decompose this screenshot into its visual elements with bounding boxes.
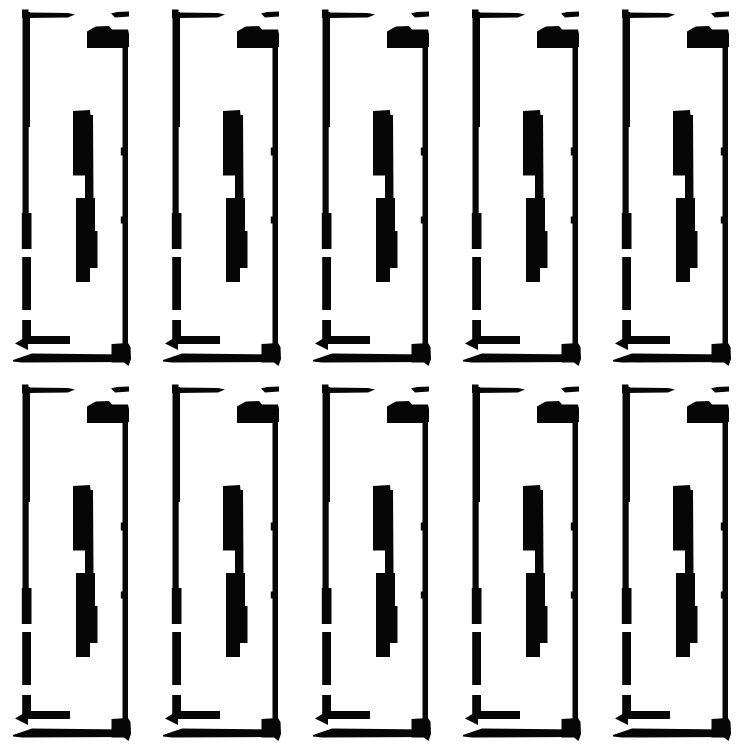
bottom-right-blob — [562, 718, 582, 741]
left-segment-3 — [172, 588, 182, 624]
left-segment-3 — [322, 213, 332, 249]
left-segment-2 — [173, 502, 179, 588]
bottom-right-blob — [412, 343, 432, 366]
middle-lower-bar — [676, 198, 698, 282]
right-nub-lower — [421, 217, 423, 224]
middle-upper-bar — [373, 110, 394, 198]
right-nub-lower — [721, 592, 723, 599]
middle-lower-bar — [526, 198, 548, 282]
right-vertical-line — [723, 420, 729, 721]
left-segment-4 — [22, 632, 31, 685]
top-right-dash — [411, 387, 429, 393]
left-segment-2 — [173, 127, 179, 213]
top-left-line — [328, 388, 375, 394]
bottom-left-line — [476, 711, 520, 719]
left-segment-1 — [323, 387, 331, 502]
top-right-blob — [237, 26, 279, 48]
adhesive-strip-outline-10 — [613, 385, 731, 742]
left-segment-2 — [623, 127, 629, 213]
top-right-dash — [261, 387, 279, 393]
top-right-dash — [711, 12, 729, 18]
left-segment-3 — [22, 588, 32, 624]
middle-upper-bar — [373, 485, 394, 573]
bottom-left-arrow-tip — [465, 336, 478, 351]
left-segment-1 — [473, 387, 481, 502]
bottom-right-blob — [112, 343, 132, 366]
right-nub-lower — [721, 217, 723, 224]
left-segment-3 — [622, 213, 632, 249]
adhesive-strip-outline-7 — [163, 385, 281, 742]
right-vertical-line — [573, 45, 579, 346]
bottom-right-blob — [712, 718, 732, 741]
top-left-line — [178, 388, 225, 394]
left-segment-3 — [622, 588, 632, 624]
right-vertical-line — [423, 420, 429, 721]
top-right-blob — [87, 26, 129, 48]
left-segment-4 — [622, 257, 631, 310]
bottom-left-line — [26, 336, 70, 344]
bottom-left-line — [326, 711, 370, 719]
left-segment-3 — [172, 213, 182, 249]
left-segment-4 — [22, 257, 31, 310]
bottom-right-blob — [262, 343, 282, 366]
right-nub-lower — [121, 217, 123, 224]
right-nub-lower — [271, 592, 273, 599]
middle-upper-bar — [523, 485, 544, 573]
top-left-line — [28, 388, 75, 394]
right-vertical-line — [273, 45, 279, 346]
bottom-left-line — [176, 336, 220, 344]
pattern-canvas — [0, 0, 750, 750]
strip-grid — [0, 0, 750, 750]
top-right-dash — [561, 387, 579, 393]
top-left-line — [328, 13, 375, 19]
left-segment-4 — [322, 257, 331, 310]
bottom-left-line — [26, 711, 70, 719]
left-segment-4 — [472, 257, 481, 310]
top-right-blob — [387, 26, 429, 48]
left-segment-3 — [322, 588, 332, 624]
top-right-dash — [561, 12, 579, 18]
bottom-left-arrow-tip — [165, 711, 178, 726]
left-segment-1 — [473, 12, 481, 127]
top-left-line — [628, 13, 675, 19]
right-nub-lower — [121, 592, 123, 599]
top-right-blob — [537, 401, 579, 423]
bottom-left-arrow-tip — [165, 336, 178, 351]
right-nub-upper — [721, 523, 723, 531]
bottom-left-line — [176, 711, 220, 719]
bottom-right-blob — [262, 718, 282, 741]
left-segment-4 — [472, 632, 481, 685]
left-segment-4 — [322, 632, 331, 685]
middle-upper-bar — [73, 485, 94, 573]
middle-lower-bar — [226, 198, 248, 282]
right-nub-upper — [271, 523, 273, 531]
right-nub-lower — [571, 217, 573, 224]
middle-upper-bar — [73, 110, 94, 198]
top-right-dash — [111, 12, 129, 18]
right-vertical-line — [123, 45, 129, 346]
bottom-right-blob — [412, 718, 432, 741]
bottom-left-arrow-tip — [315, 711, 328, 726]
middle-upper-bar — [223, 110, 244, 198]
top-left-line — [478, 388, 525, 394]
bottom-left-arrow-tip — [315, 336, 328, 351]
right-vertical-line — [723, 45, 729, 346]
left-segment-2 — [23, 502, 29, 588]
bottom-right-blob — [712, 343, 732, 366]
middle-lower-bar — [226, 573, 248, 657]
adhesive-strip-outline-3 — [313, 10, 431, 367]
left-segment-3 — [22, 213, 32, 249]
adhesive-strip-outline-8 — [313, 385, 431, 742]
middle-upper-bar — [223, 485, 244, 573]
left-segment-4 — [622, 632, 631, 685]
right-nub-upper — [421, 523, 423, 531]
bottom-left-line — [626, 336, 670, 344]
middle-lower-bar — [76, 198, 98, 282]
top-right-blob — [537, 26, 579, 48]
right-nub-lower — [421, 592, 423, 599]
right-nub-upper — [271, 148, 273, 156]
left-segment-2 — [623, 502, 629, 588]
right-nub-upper — [571, 523, 573, 531]
right-vertical-line — [273, 420, 279, 721]
left-segment-2 — [323, 502, 329, 588]
left-segment-3 — [472, 213, 482, 249]
left-segment-1 — [173, 387, 181, 502]
middle-lower-bar — [376, 573, 398, 657]
right-nub-upper — [121, 523, 123, 531]
top-left-line — [478, 13, 525, 19]
bottom-left-arrow-tip — [15, 336, 28, 351]
left-segment-1 — [23, 387, 31, 502]
left-segment-1 — [623, 387, 631, 502]
middle-upper-bar — [673, 485, 694, 573]
bottom-left-line — [476, 336, 520, 344]
bottom-left-arrow-tip — [615, 336, 628, 351]
top-left-line — [28, 13, 75, 19]
right-vertical-line — [423, 45, 429, 346]
adhesive-strip-outline-9 — [463, 385, 581, 742]
top-right-blob — [237, 401, 279, 423]
left-segment-2 — [473, 502, 479, 588]
middle-lower-bar — [376, 198, 398, 282]
top-left-line — [178, 13, 225, 19]
left-segment-4 — [172, 632, 181, 685]
left-segment-2 — [473, 127, 479, 213]
middle-lower-bar — [676, 573, 698, 657]
right-nub-upper — [121, 148, 123, 156]
right-nub-lower — [271, 217, 273, 224]
right-vertical-line — [573, 420, 579, 721]
middle-upper-bar — [523, 110, 544, 198]
right-nub-lower — [571, 592, 573, 599]
left-segment-2 — [323, 127, 329, 213]
top-right-blob — [87, 401, 129, 423]
bottom-right-blob — [562, 343, 582, 366]
top-right-dash — [711, 387, 729, 393]
right-nub-upper — [421, 148, 423, 156]
bottom-left-arrow-tip — [615, 711, 628, 726]
top-left-line — [628, 388, 675, 394]
top-right-blob — [387, 401, 429, 423]
left-segment-1 — [623, 12, 631, 127]
bottom-left-line — [626, 711, 670, 719]
left-segment-4 — [172, 257, 181, 310]
left-segment-1 — [23, 12, 31, 127]
adhesive-strip-outline-1 — [13, 10, 131, 367]
adhesive-strip-outline-2 — [163, 10, 281, 367]
right-nub-upper — [571, 148, 573, 156]
right-nub-upper — [721, 148, 723, 156]
left-segment-1 — [323, 12, 331, 127]
top-right-dash — [261, 12, 279, 18]
top-right-dash — [411, 12, 429, 18]
top-right-blob — [687, 401, 729, 423]
top-right-blob — [687, 26, 729, 48]
middle-lower-bar — [526, 573, 548, 657]
bottom-left-arrow-tip — [15, 711, 28, 726]
bottom-left-arrow-tip — [465, 711, 478, 726]
left-segment-2 — [23, 127, 29, 213]
left-segment-1 — [173, 12, 181, 127]
top-right-dash — [111, 387, 129, 393]
adhesive-strip-outline-6 — [13, 385, 131, 742]
right-vertical-line — [123, 420, 129, 721]
middle-upper-bar — [673, 110, 694, 198]
bottom-right-blob — [112, 718, 132, 741]
adhesive-strip-outline-5 — [613, 10, 731, 367]
adhesive-strip-outline-4 — [463, 10, 581, 367]
middle-lower-bar — [76, 573, 98, 657]
left-segment-3 — [472, 588, 482, 624]
bottom-left-line — [326, 336, 370, 344]
